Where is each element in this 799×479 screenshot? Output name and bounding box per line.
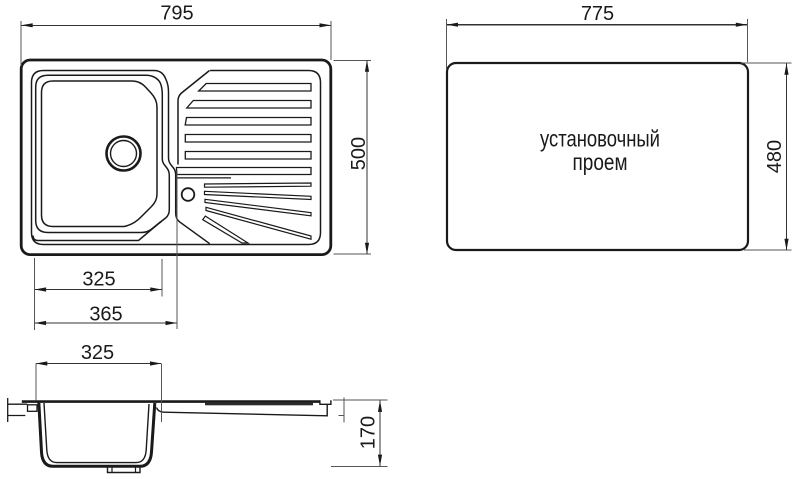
svg-text:775: 775 [581, 3, 614, 25]
svg-text:установочный: установочный [540, 126, 660, 152]
svg-text:480: 480 [764, 140, 786, 173]
svg-text:795: 795 [160, 3, 193, 25]
svg-text:365: 365 [89, 304, 122, 326]
svg-text:170: 170 [358, 416, 380, 449]
svg-text:325: 325 [81, 342, 114, 364]
svg-text:500: 500 [348, 137, 370, 170]
svg-text:проем: проем [573, 149, 628, 175]
svg-text:325: 325 [82, 269, 115, 291]
